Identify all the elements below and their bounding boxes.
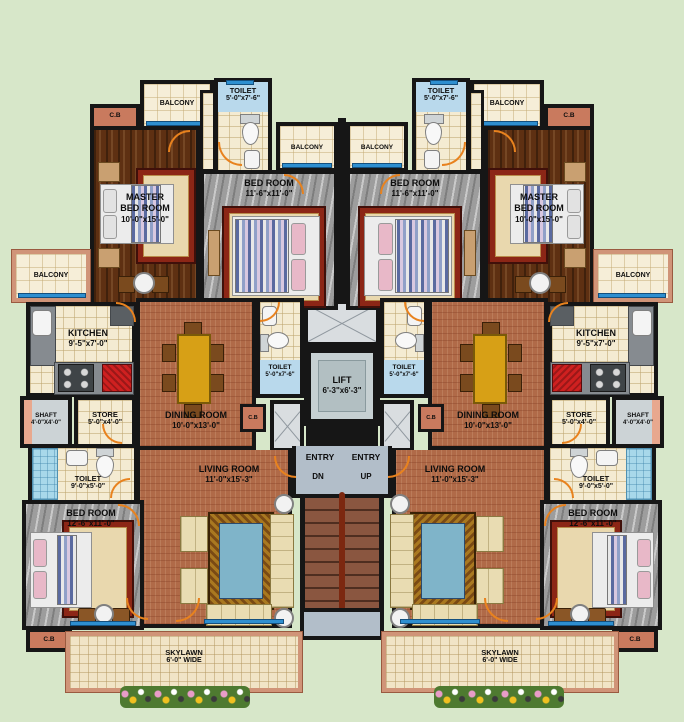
pillow xyxy=(291,223,306,255)
store-label: STORE xyxy=(78,410,132,419)
wash-basin xyxy=(244,150,260,169)
cb-label: C.B xyxy=(30,636,68,644)
entry-left-label: ENTRY xyxy=(298,452,342,463)
window-sill xyxy=(598,293,666,298)
pillow xyxy=(637,571,651,599)
wash-basin xyxy=(66,450,88,466)
master-bedroom-right: MASTER BED ROOM 10'-0"x15'-0" xyxy=(484,126,594,310)
shaft-hatch-right xyxy=(380,400,414,452)
skylawn-label: SKYLAWN xyxy=(386,648,614,657)
window-sill xyxy=(226,80,254,85)
entry-right-label: ENTRY xyxy=(344,452,388,463)
kitchen-label: KITCHEN xyxy=(552,328,640,339)
master-bedroom-left: MASTER BED ROOM 10'-0"x15'-0" xyxy=(90,126,200,310)
skylawn-right: SKYLAWN 6'-0" WIDE xyxy=(382,632,618,692)
blanket xyxy=(57,535,77,605)
chair xyxy=(508,374,522,392)
passage-top-right xyxy=(468,90,484,172)
window-sill xyxy=(204,619,284,624)
blanket xyxy=(607,535,627,605)
red-counter xyxy=(552,364,582,392)
living-label: LIVING ROOM xyxy=(170,464,288,475)
lift-bottom-wall xyxy=(306,426,378,448)
chair xyxy=(508,344,522,362)
master-dims: 10'-0"x15'-0" xyxy=(94,215,196,225)
lift-label: LIFT xyxy=(311,375,373,386)
stair-handrail xyxy=(339,492,345,616)
center-divider-wall xyxy=(338,118,346,310)
flower-bed-left xyxy=(120,686,250,708)
bedroom-dims: 11'-6"x11'-0" xyxy=(350,189,480,199)
cupboard-mid-right: C.B xyxy=(418,404,444,432)
cupboard-bottom-right: C.B xyxy=(612,628,658,652)
toilet-label: TOILET xyxy=(218,86,268,95)
toilet-dims: 5'-0"x7'-6" xyxy=(384,372,424,380)
bedroom-top-left: BED ROOM 11'-6"x11'-0" xyxy=(200,170,338,310)
bedroom-top-right: BED ROOM 11'-6"x11'-0" xyxy=(346,170,484,310)
sofa xyxy=(270,514,294,608)
chair xyxy=(460,374,474,392)
kitchen-label: KITCHEN xyxy=(44,328,132,339)
store-label: STORE xyxy=(552,410,606,419)
pillow xyxy=(33,539,47,567)
shaft-dims: 4'-0"X4'-0" xyxy=(616,420,660,428)
carpet xyxy=(410,512,476,610)
store-left: STORE 5'-0"x4'-0" xyxy=(74,396,136,448)
toilet-dims: 5'-0"x7'-6" xyxy=(218,95,268,104)
window-sill xyxy=(548,621,614,626)
cb-label: C.B xyxy=(243,415,263,422)
living-dims: 11'-0"x15'-3" xyxy=(170,475,288,485)
kitchen-dims: 9'-5"x7'-0" xyxy=(44,339,132,349)
carpet xyxy=(208,512,274,610)
toilet-label: TOILET xyxy=(416,86,466,95)
living-label: LIVING ROOM xyxy=(396,464,514,475)
window-sill xyxy=(352,163,402,168)
chair xyxy=(210,374,224,392)
nightstand xyxy=(564,162,586,182)
cb-label: C.B xyxy=(548,112,590,120)
window-sill xyxy=(430,80,458,85)
living-room-left: LIVING ROOM 11'-0"x15'-3" xyxy=(136,450,292,628)
pillow xyxy=(291,259,306,291)
nightstand xyxy=(98,248,120,268)
bed xyxy=(30,532,92,608)
balcony-label: BALCONY xyxy=(598,272,668,281)
shaft-hatch-left xyxy=(270,400,304,452)
toilet-label: TOILET xyxy=(384,364,424,372)
wc xyxy=(395,332,417,349)
bed xyxy=(592,532,654,608)
master-label-2: BED ROOM xyxy=(94,203,196,214)
bench xyxy=(464,230,476,276)
shaft-right: SHAFT 4'-0"X4'-0" xyxy=(612,396,664,448)
armchair xyxy=(180,516,208,552)
round-table xyxy=(529,272,551,294)
toilet-dims: 5'-0"x7'-6" xyxy=(260,372,300,380)
balcony-label: BALCONY xyxy=(16,272,86,281)
lift: LIFT 6'-3"x6'-3" xyxy=(304,346,380,426)
dining-dims: 10'-0"x13'-0" xyxy=(432,421,544,431)
store-right: STORE 5'-0"x4'-0" xyxy=(548,396,610,448)
dining-label: DINING ROOM xyxy=(432,410,544,421)
cb-label: C.B xyxy=(616,636,654,644)
bedroom-label: BED ROOM xyxy=(350,178,480,189)
up-label: UP xyxy=(348,472,384,482)
balcony-outer-left: BALCONY xyxy=(12,250,90,302)
skylawn-dims: 6'-0" WIDE xyxy=(386,657,614,666)
cupboard-mid-left: C.B xyxy=(240,404,266,432)
bed xyxy=(364,216,452,296)
balcony-inner-left: BALCONY xyxy=(276,122,338,172)
nightstand xyxy=(98,162,120,182)
armchair xyxy=(476,516,504,552)
side-table xyxy=(274,608,294,628)
living-room-right: LIVING ROOM 11'-0"x15'-3" xyxy=(392,450,548,628)
floor-plan: LIFT 6'-3"x6'-3" ENTRY ENTRY DN UP C.B B… xyxy=(0,0,684,722)
side-table xyxy=(390,494,410,514)
balcony-label: BALCONY xyxy=(350,144,404,152)
shaft-label: SHAFT xyxy=(616,412,660,420)
skylawn-label: SKYLAWN xyxy=(70,648,298,657)
shaft-dims: 4'-0"X4'-0" xyxy=(24,420,68,428)
blanket xyxy=(395,219,449,293)
wc xyxy=(242,122,259,145)
bench xyxy=(208,230,220,276)
balcony-inner-right: BALCONY xyxy=(346,122,408,172)
shaft-left: SHAFT 4'-0"X4'-0" xyxy=(20,396,72,448)
shaft-label: SHAFT xyxy=(24,412,68,420)
balcony-outer-right: BALCONY xyxy=(594,250,672,302)
lift-dims: 6'-3"x6'-3" xyxy=(311,386,373,396)
skylawn-left: SKYLAWN 6'-0" WIDE xyxy=(66,632,302,692)
cb-label: C.B xyxy=(421,415,441,422)
chair xyxy=(549,276,566,293)
wash-basin xyxy=(424,150,440,169)
flower-bed-right xyxy=(434,686,564,708)
toilet-top-left: TOILET 5'-0"x7'-6" xyxy=(214,78,272,174)
window-sill xyxy=(282,163,332,168)
toilet-dims: 5'-0"x7'-6" xyxy=(416,95,466,104)
pillow xyxy=(33,571,47,599)
wc xyxy=(267,332,289,349)
side-table xyxy=(390,608,410,628)
master-label-2: BED ROOM xyxy=(488,203,590,214)
blanket xyxy=(235,219,289,293)
bedroom-dims: 11'-6"x11'-0" xyxy=(204,189,334,199)
red-counter xyxy=(102,364,132,392)
round-table xyxy=(133,272,155,294)
sofa xyxy=(390,514,414,608)
dn-label: DN xyxy=(300,472,336,482)
window-sill xyxy=(18,293,86,298)
skylawn-dims: 6'-0" WIDE xyxy=(70,657,298,666)
cb-label: C.B xyxy=(94,112,136,120)
toilet-label: TOILET xyxy=(260,364,300,372)
dining-table xyxy=(177,334,211,404)
stove xyxy=(590,364,626,392)
chair xyxy=(460,344,474,362)
master-label-1: MASTER xyxy=(488,192,590,203)
window-sill xyxy=(400,619,480,624)
bedroom-label: BED ROOM xyxy=(204,178,334,189)
chair xyxy=(162,374,176,392)
stair-landing xyxy=(300,608,384,640)
dining-room-left: DINING ROOM 10'-0"x13'-0" xyxy=(136,298,256,450)
side-table xyxy=(274,494,294,514)
wc xyxy=(425,122,442,145)
balcony-label: BALCONY xyxy=(280,144,334,152)
window-sill xyxy=(70,621,136,626)
chair xyxy=(210,344,224,362)
dining-room-right: DINING ROOM 10'-0"x13'-0" xyxy=(428,298,548,450)
master-dims: 10'-0"x15'-0" xyxy=(488,215,590,225)
entry-lobby: ENTRY ENTRY DN UP xyxy=(292,446,392,498)
chair xyxy=(162,344,176,362)
pillow xyxy=(378,259,393,291)
dining-dims: 10'-0"x13'-0" xyxy=(140,421,252,431)
bed xyxy=(232,216,320,296)
stove xyxy=(58,364,94,392)
dining-label: DINING ROOM xyxy=(140,410,252,421)
wash-basin xyxy=(596,450,618,466)
toilet-top-right: TOILET 5'-0"x7'-6" xyxy=(412,78,470,174)
kitchen-dims: 9'-5"x7'-0" xyxy=(552,339,640,349)
pillow xyxy=(637,539,651,567)
nightstand xyxy=(564,248,586,268)
master-label-1: MASTER xyxy=(94,192,196,203)
living-dims: 11'-0"x15'-3" xyxy=(396,475,514,485)
dining-table xyxy=(473,334,507,404)
pillow xyxy=(378,223,393,255)
